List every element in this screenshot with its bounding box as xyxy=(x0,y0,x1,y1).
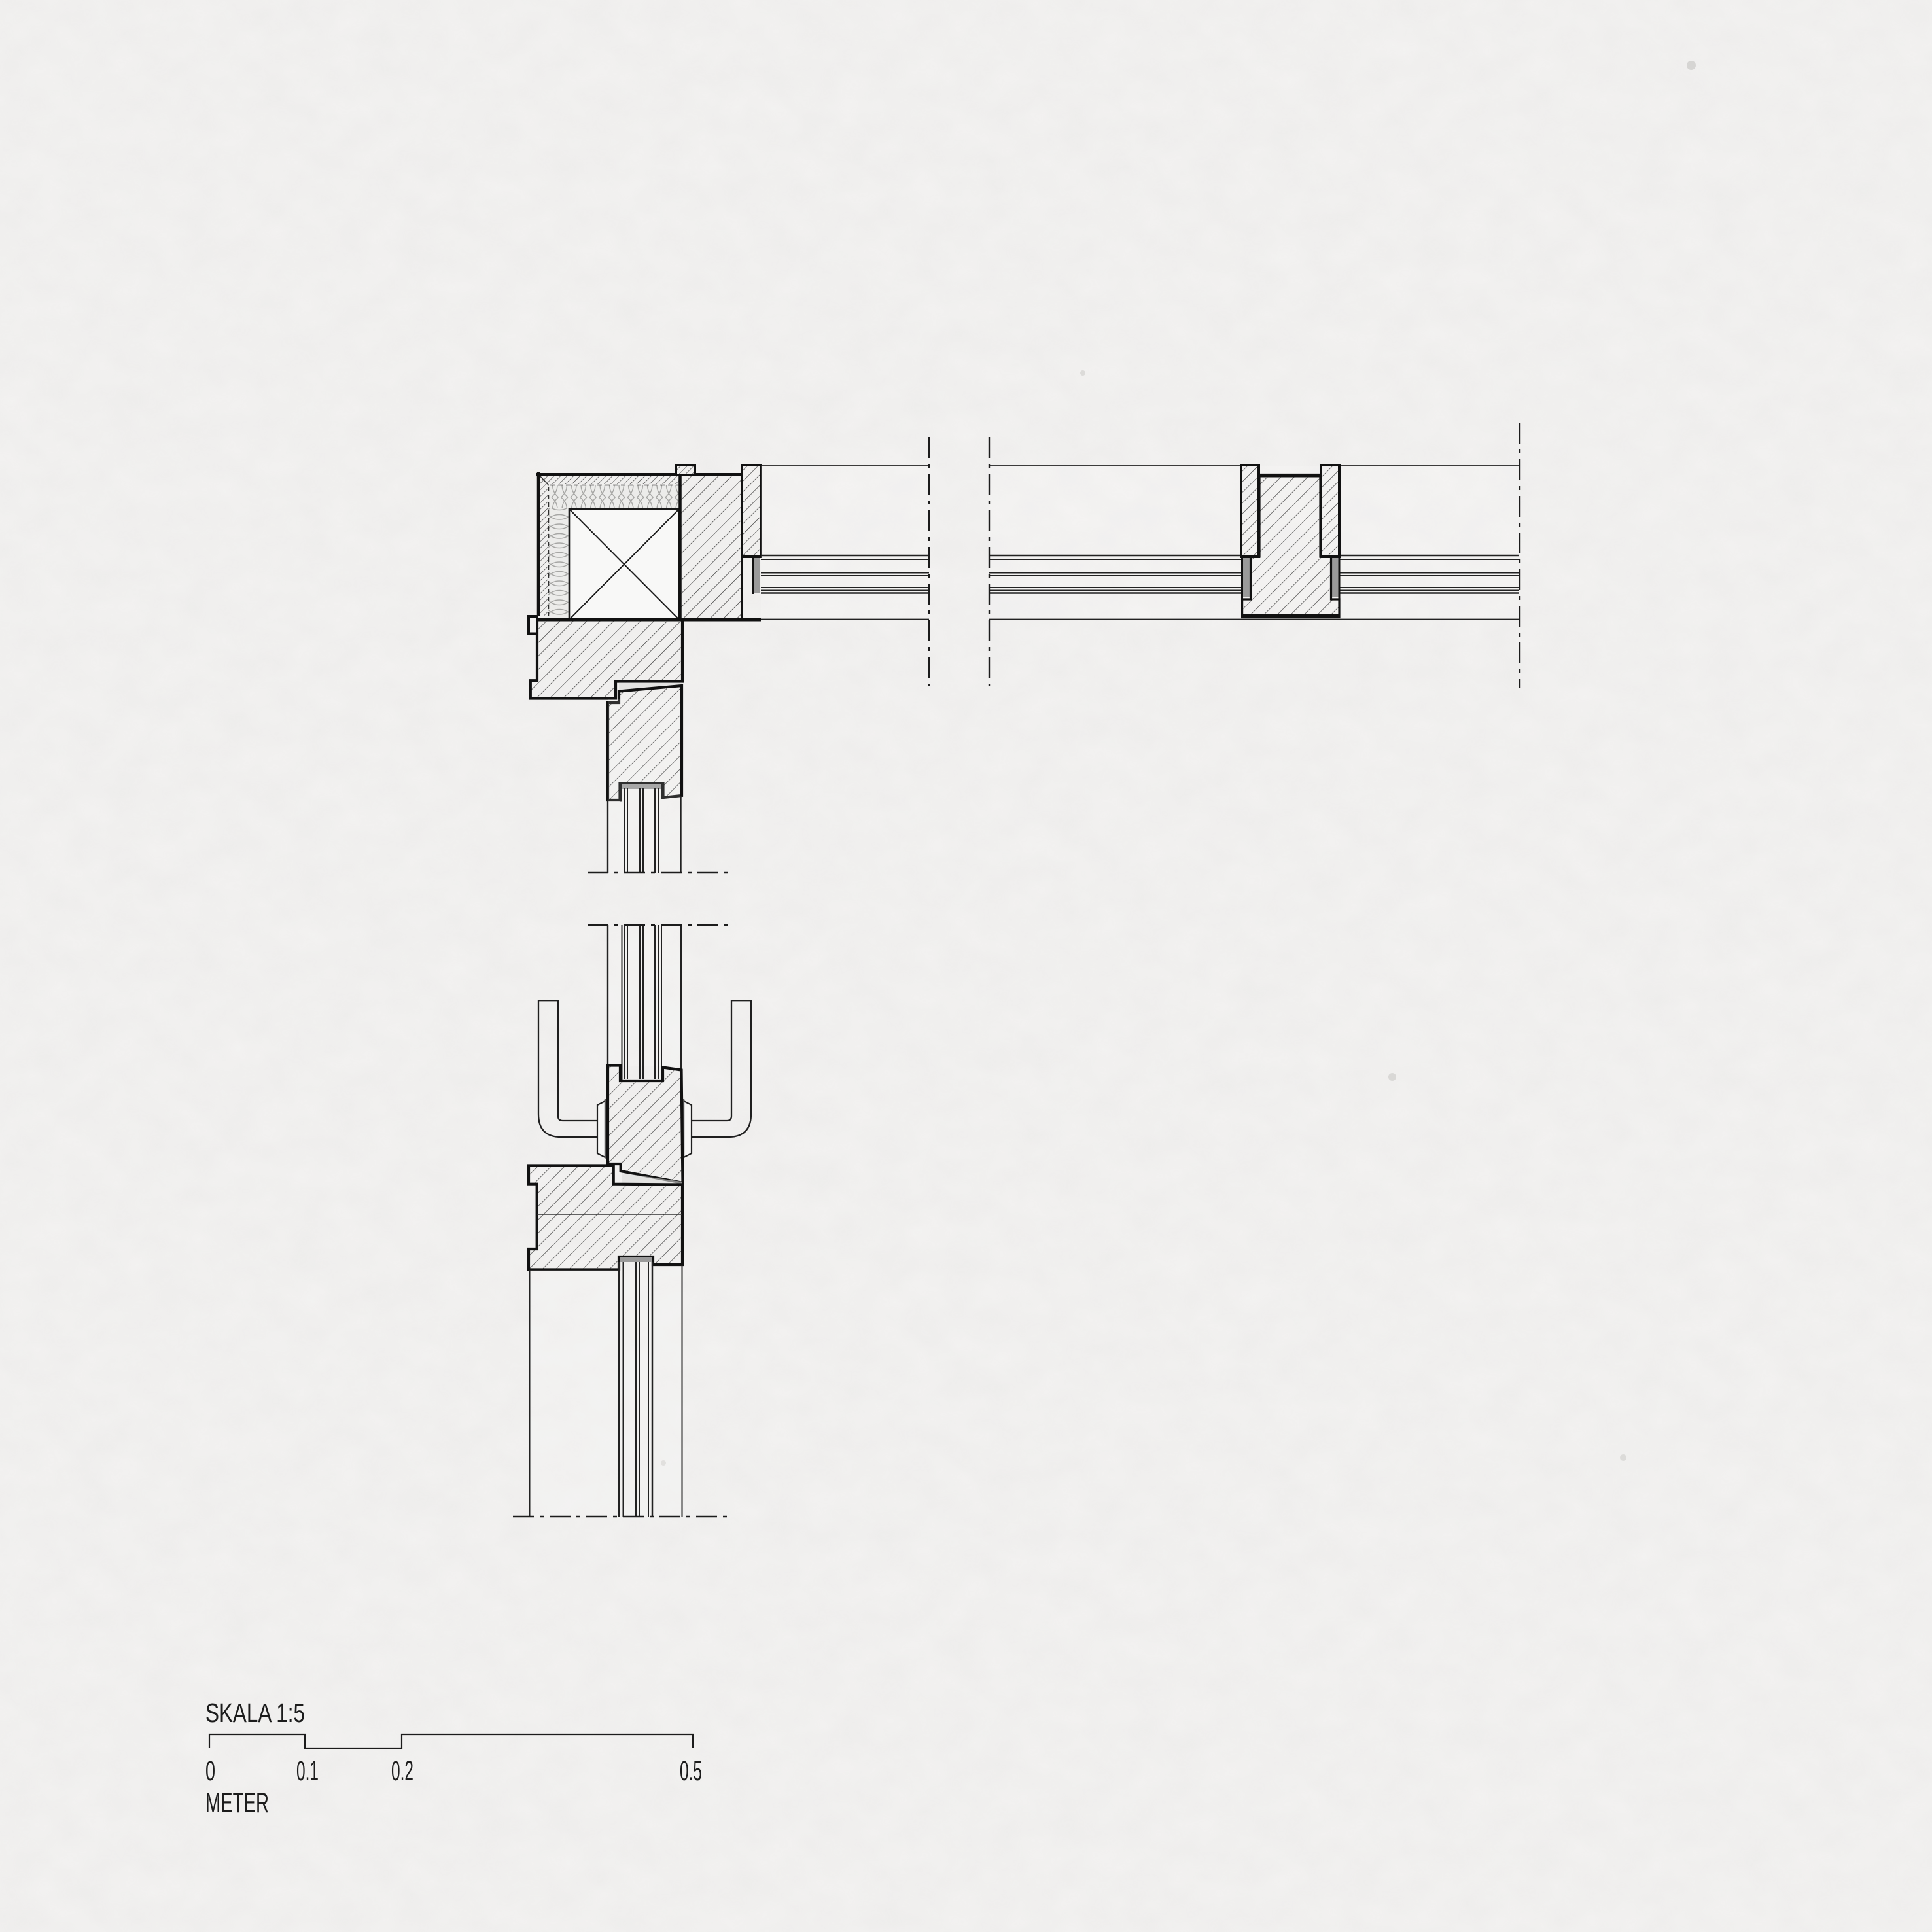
svg-text:0.5: 0.5 xyxy=(680,1755,702,1787)
svg-text:0.1: 0.1 xyxy=(296,1755,319,1787)
svg-text:METER: METER xyxy=(205,1787,269,1819)
svg-text:0.2: 0.2 xyxy=(391,1755,413,1787)
svg-text:SKALA 1:5: SKALA 1:5 xyxy=(205,1698,305,1728)
svg-text:0: 0 xyxy=(205,1755,215,1787)
